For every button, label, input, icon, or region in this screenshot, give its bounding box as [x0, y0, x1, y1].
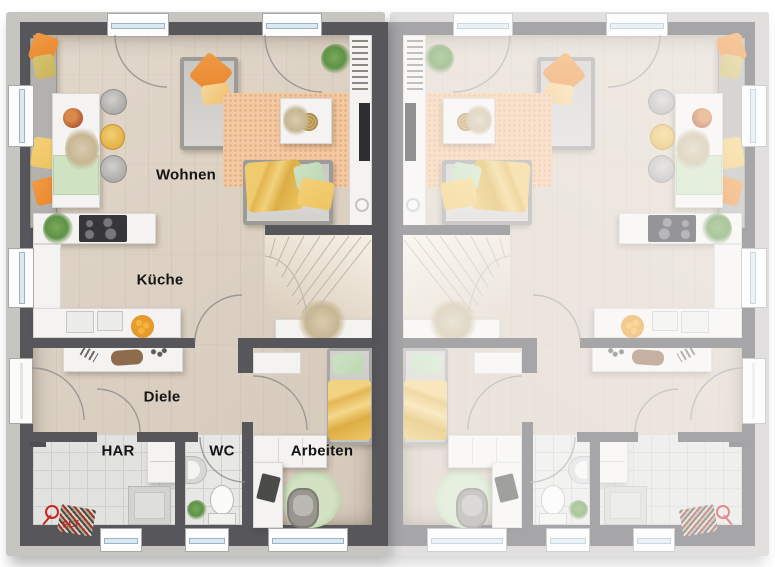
- interior-wall: [242, 422, 253, 525]
- shelf-books: [407, 40, 423, 90]
- decor-bowl: [692, 108, 712, 128]
- bed-blanket-yellow: [328, 380, 371, 440]
- table-plant: [65, 126, 99, 172]
- cooktop-icon: [79, 215, 127, 242]
- kitchen-sink: [66, 311, 94, 333]
- decor-bowl: [63, 108, 83, 128]
- shelf-books: [352, 40, 368, 90]
- toilet-bowl: [210, 485, 234, 515]
- bed-pillow-mint: [411, 352, 443, 375]
- toilet-bowl: [541, 485, 565, 515]
- toilet-tank: [539, 513, 567, 525]
- kitchen-counter-left: [33, 244, 61, 314]
- corner-plant: [424, 44, 454, 74]
- washing-machine: [128, 486, 171, 525]
- wood-tray: [111, 349, 144, 366]
- kitchen-sink: [681, 311, 709, 333]
- terrace-door-window: [606, 13, 668, 37]
- window: [8, 85, 34, 147]
- niche-shelf: [253, 352, 301, 374]
- interior-wall: [522, 338, 537, 373]
- room-label-arbeiten: Arbeiten: [291, 443, 353, 460]
- window: [741, 248, 767, 308]
- room-label-kueche: Küche: [137, 272, 184, 289]
- pillow-yellow: [440, 177, 478, 210]
- window: [546, 528, 590, 552]
- office-chair: [287, 488, 319, 528]
- dining-chair: [648, 155, 675, 183]
- wc-plant: [187, 500, 207, 520]
- terrace-door-window: [262, 13, 322, 37]
- keys: [149, 347, 167, 359]
- speaker: [355, 198, 369, 212]
- interior-wall: [265, 225, 372, 235]
- electric-meter-icon: [44, 505, 59, 527]
- fruit-bowl: [131, 315, 154, 338]
- interior-wall: [20, 432, 97, 442]
- niche-shelf: [474, 352, 522, 374]
- cooktop-icon: [648, 215, 696, 242]
- interior-wall: [522, 422, 533, 525]
- entrance-door: [742, 358, 766, 424]
- kitchen-sink: [652, 311, 678, 331]
- dining-chair-yellow: [100, 124, 125, 150]
- fruit-bowl: [621, 315, 644, 338]
- kitchen-plant: [702, 213, 732, 245]
- window: [633, 528, 675, 552]
- tv-screen: [359, 103, 370, 161]
- terrace-door-window: [453, 13, 513, 37]
- table-plant: [676, 126, 710, 172]
- interior-wall: [580, 338, 755, 348]
- keys: [608, 347, 626, 359]
- window: [427, 528, 507, 552]
- pillow-yellow: [297, 177, 335, 210]
- wood-tray: [632, 349, 665, 366]
- corner-plant: [321, 44, 351, 74]
- unit-left: Wohnen Küche Diele HAR WC Arbeiten ELT: [3, 8, 388, 559]
- toilet-tank: [208, 513, 236, 525]
- floor-plan: Wohnen Küche Diele HAR WC Arbeiten ELT: [0, 0, 775, 567]
- interior-wall: [678, 432, 755, 442]
- interior-wall: [577, 432, 638, 442]
- room-label-har: HAR: [101, 443, 134, 460]
- interior-wall: [238, 338, 253, 373]
- wc-plant: [568, 500, 588, 520]
- window: [741, 85, 767, 147]
- interior-wall: [238, 338, 372, 348]
- dining-chair: [100, 89, 127, 115]
- bed-blanket-yellow: [404, 380, 447, 440]
- dining-chair: [648, 89, 675, 115]
- dining-chair: [100, 155, 127, 183]
- utility-cabinet: [597, 438, 628, 483]
- pillow-olive: [32, 53, 57, 79]
- interior-wall: [175, 432, 185, 525]
- pillow-olive: [718, 53, 743, 79]
- utility-cabinet: [147, 438, 178, 483]
- room-label-wohnen: Wohnen: [156, 167, 216, 184]
- interior-wall: [590, 432, 600, 525]
- interior-wall: [20, 338, 195, 348]
- room-label-diele: Diele: [144, 389, 181, 406]
- coffee-table-plant: [466, 103, 492, 137]
- bed-pillow-mint: [332, 352, 364, 375]
- dining-chair-yellow: [650, 124, 675, 150]
- terrace-door-window: [107, 13, 169, 37]
- wc-sink: [568, 456, 590, 484]
- electric-meter-icon: [716, 505, 731, 527]
- window: [268, 528, 348, 552]
- interior-wall: [403, 225, 510, 235]
- interior-wall: [403, 338, 537, 348]
- washing-machine: [604, 486, 647, 525]
- speaker: [406, 198, 420, 212]
- entrance-door: [9, 358, 33, 424]
- kitchen-sink: [97, 311, 123, 331]
- window: [8, 248, 34, 308]
- room-label-wc: WC: [209, 443, 234, 460]
- kitchen-counter-left: [714, 244, 742, 314]
- window: [100, 528, 142, 552]
- interior-wall: [137, 432, 198, 442]
- kitchen-plant: [43, 213, 73, 245]
- coffee-table-plant: [283, 103, 309, 137]
- elt-label: ELT: [62, 518, 80, 530]
- office-chair: [456, 488, 488, 528]
- tv-screen: [405, 103, 416, 161]
- window: [185, 528, 229, 552]
- unit-right: Wohnen Küche Diele HAR WC Arbeiten ELT: [387, 8, 772, 559]
